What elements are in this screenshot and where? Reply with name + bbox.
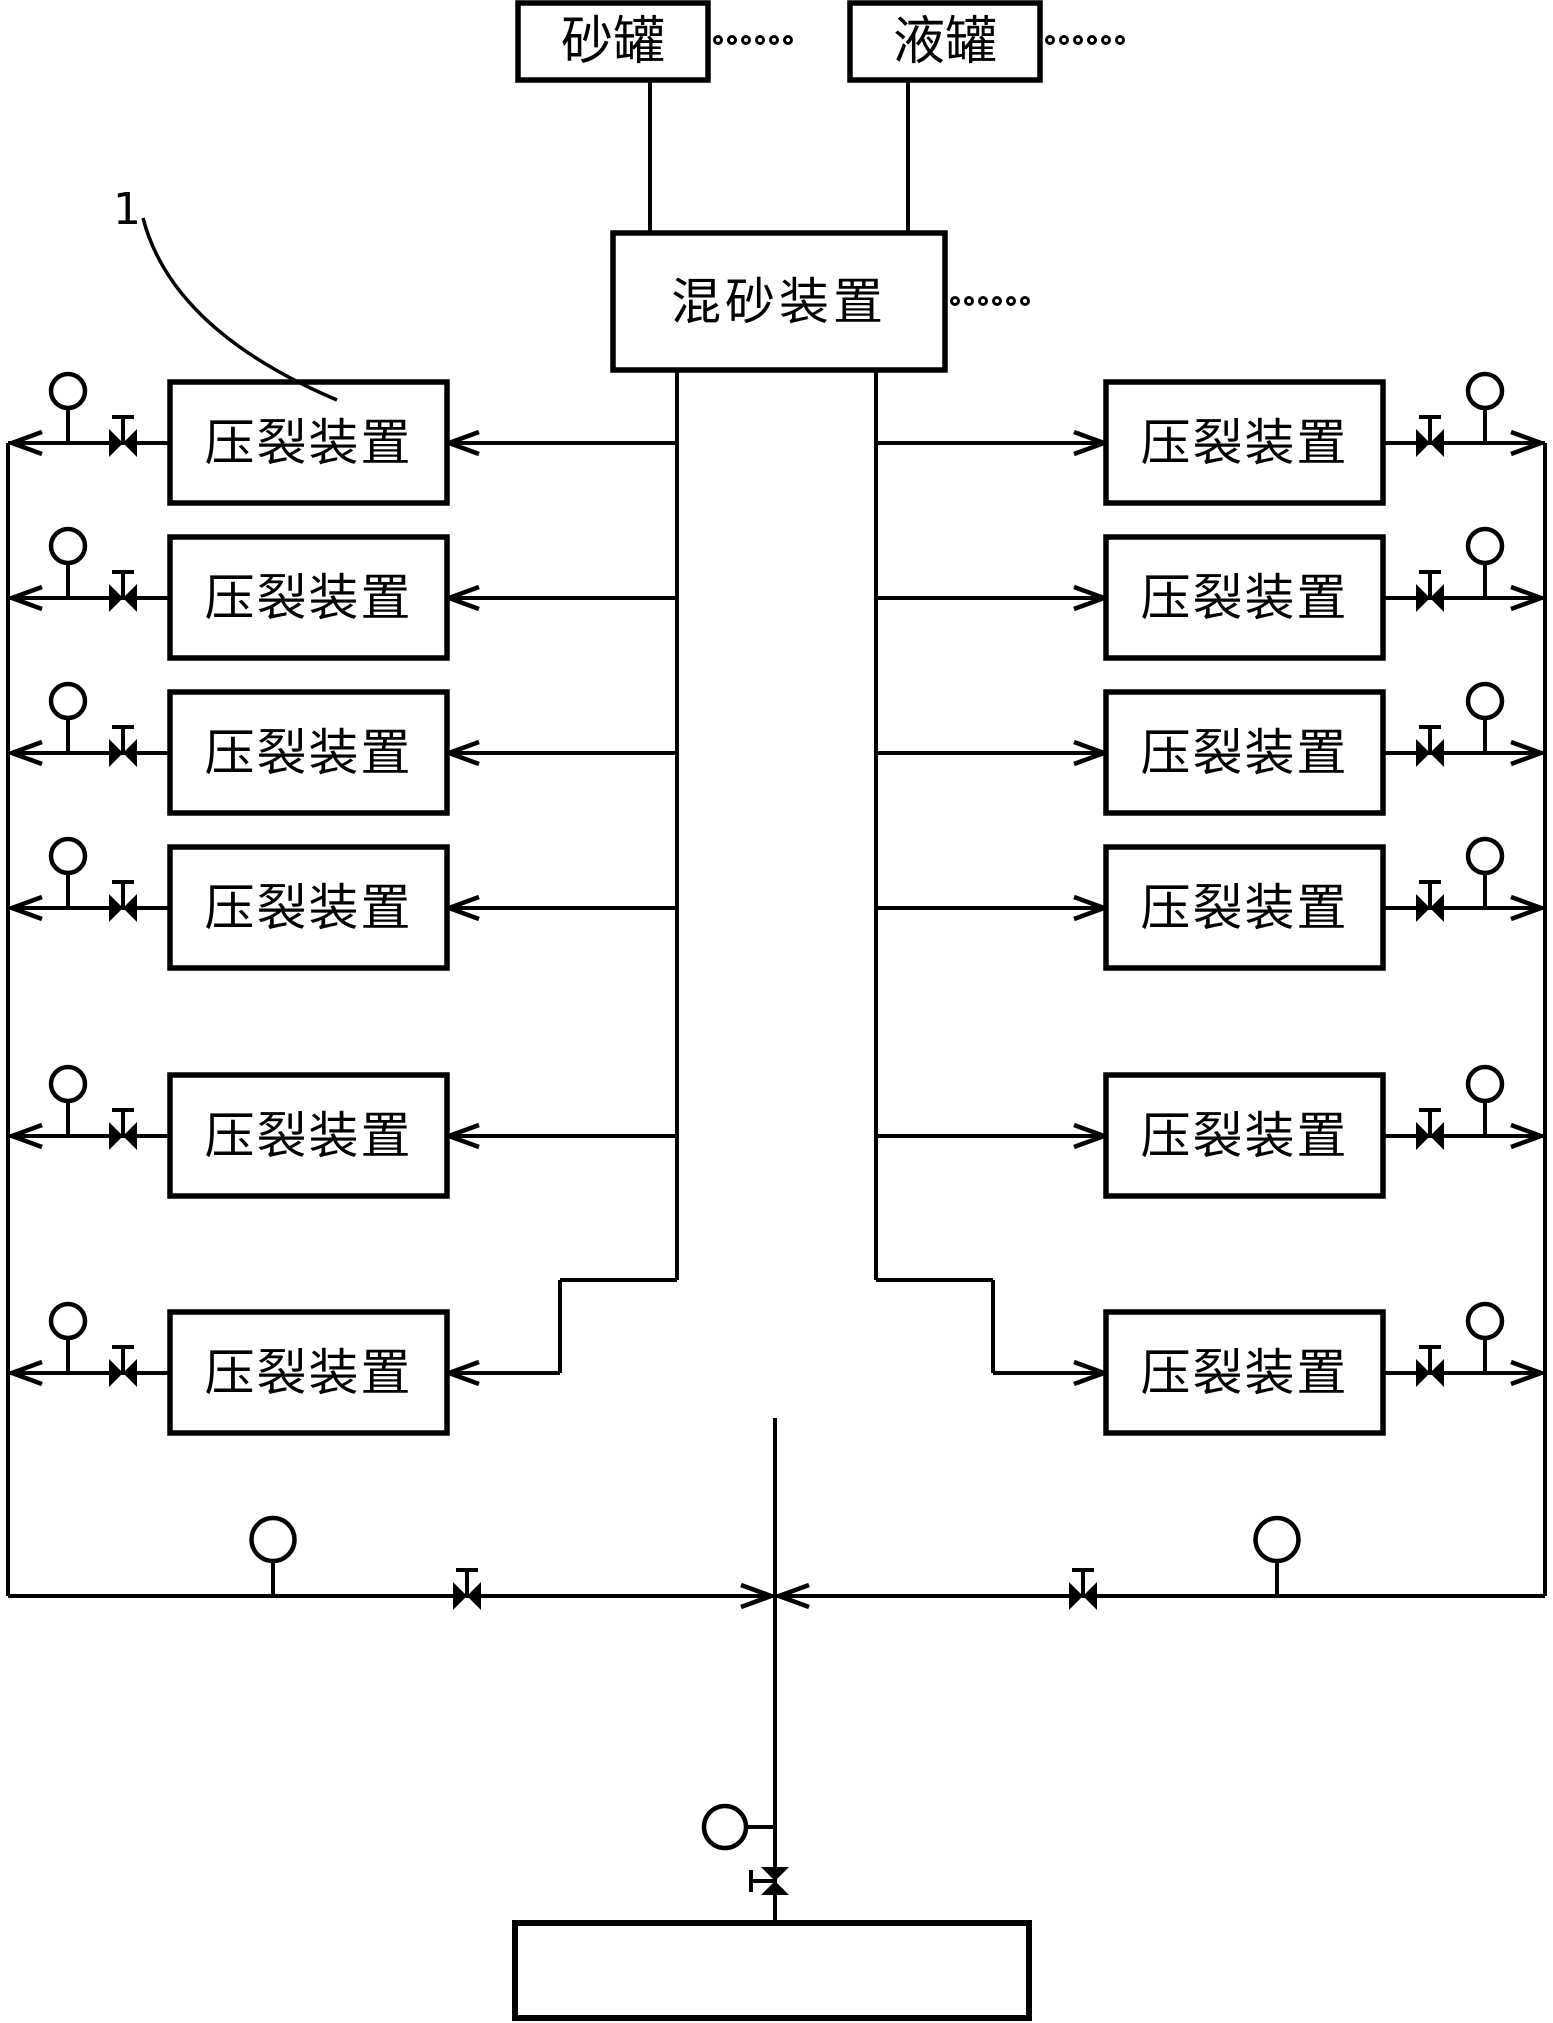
pressure-gauge-icon (1468, 1304, 1502, 1373)
pressure-gauge-icon (51, 374, 85, 443)
pressure-gauge-icon (1468, 684, 1502, 753)
frac-unit-label: 压裂装置 (1141, 1107, 1349, 1165)
frac-unit-label: 压裂装置 (205, 724, 413, 782)
gate-valve-icon (109, 1110, 137, 1150)
pressure-gauge-icon (1468, 374, 1502, 443)
pressure-gauge-icon (704, 1806, 775, 1848)
gate-valve-icon (1416, 1110, 1444, 1150)
wellhead-box (515, 1923, 1029, 2018)
gate-valve-icon (1416, 882, 1444, 922)
liquid-tank-label: 液罐 (893, 12, 997, 72)
ellipsis-dots (952, 298, 1029, 305)
frac-unit-label: 压裂装置 (205, 1107, 413, 1165)
pressure-gauge-icon (1256, 1518, 1299, 1596)
gate-valve-icon (109, 1347, 137, 1387)
frac-unit-label: 压裂装置 (205, 569, 413, 627)
gate-valve-icon (109, 727, 137, 767)
frac-unit-label: 压裂装置 (1141, 414, 1349, 472)
gate-valve-icon (1069, 1570, 1097, 1610)
frac-unit-label: 压裂装置 (205, 414, 413, 472)
gate-valve-icon (1416, 417, 1444, 457)
pressure-gauge-icon (51, 1304, 85, 1373)
reference-leader-line (143, 218, 337, 400)
ellipsis-dots (1047, 37, 1124, 44)
gate-valve-vertical-icon (751, 1867, 789, 1895)
frac-unit-label: 压裂装置 (1141, 724, 1349, 782)
gate-valve-icon (1416, 1347, 1444, 1387)
gate-valve-icon (453, 1570, 481, 1610)
pressure-gauge-icon (51, 529, 85, 598)
frac-unit-label: 压裂装置 (205, 879, 413, 937)
pressure-gauge-icon (1468, 1067, 1502, 1136)
frac-unit-label: 压裂装置 (1141, 569, 1349, 627)
frac-unit-label: 压裂装置 (1141, 879, 1349, 937)
gate-valve-icon (109, 882, 137, 922)
gate-valve-icon (1416, 727, 1444, 767)
pressure-gauge-icon (252, 1518, 295, 1596)
fracturing-system-piping-diagram: 砂罐 液罐 混砂装置 1 压裂装置压裂装置压裂装置压裂装置压裂装置压裂装置压裂装… (0, 0, 1553, 2023)
pressure-gauge-icon (51, 839, 85, 908)
ellipsis-dots (715, 37, 792, 44)
diagram-page: 砂罐 液罐 混砂装置 1 压裂装置压裂装置压裂装置压裂装置压裂装置压裂装置压裂装… (0, 0, 1553, 2023)
reference-numeral-1: 1 (113, 184, 141, 235)
pressure-gauge-icon (51, 684, 85, 753)
pressure-gauge-icon (1468, 529, 1502, 598)
pressure-gauge-icon (51, 1067, 85, 1136)
gate-valve-icon (1416, 572, 1444, 612)
sand-mixer-label: 混砂装置 (671, 273, 887, 331)
sand-tank-label: 砂罐 (561, 12, 665, 72)
frac-unit-label: 压裂装置 (205, 1344, 413, 1402)
gate-valve-icon (109, 417, 137, 457)
pressure-gauge-icon (1468, 839, 1502, 908)
gate-valve-icon (109, 572, 137, 612)
frac-unit-label: 压裂装置 (1141, 1344, 1349, 1402)
